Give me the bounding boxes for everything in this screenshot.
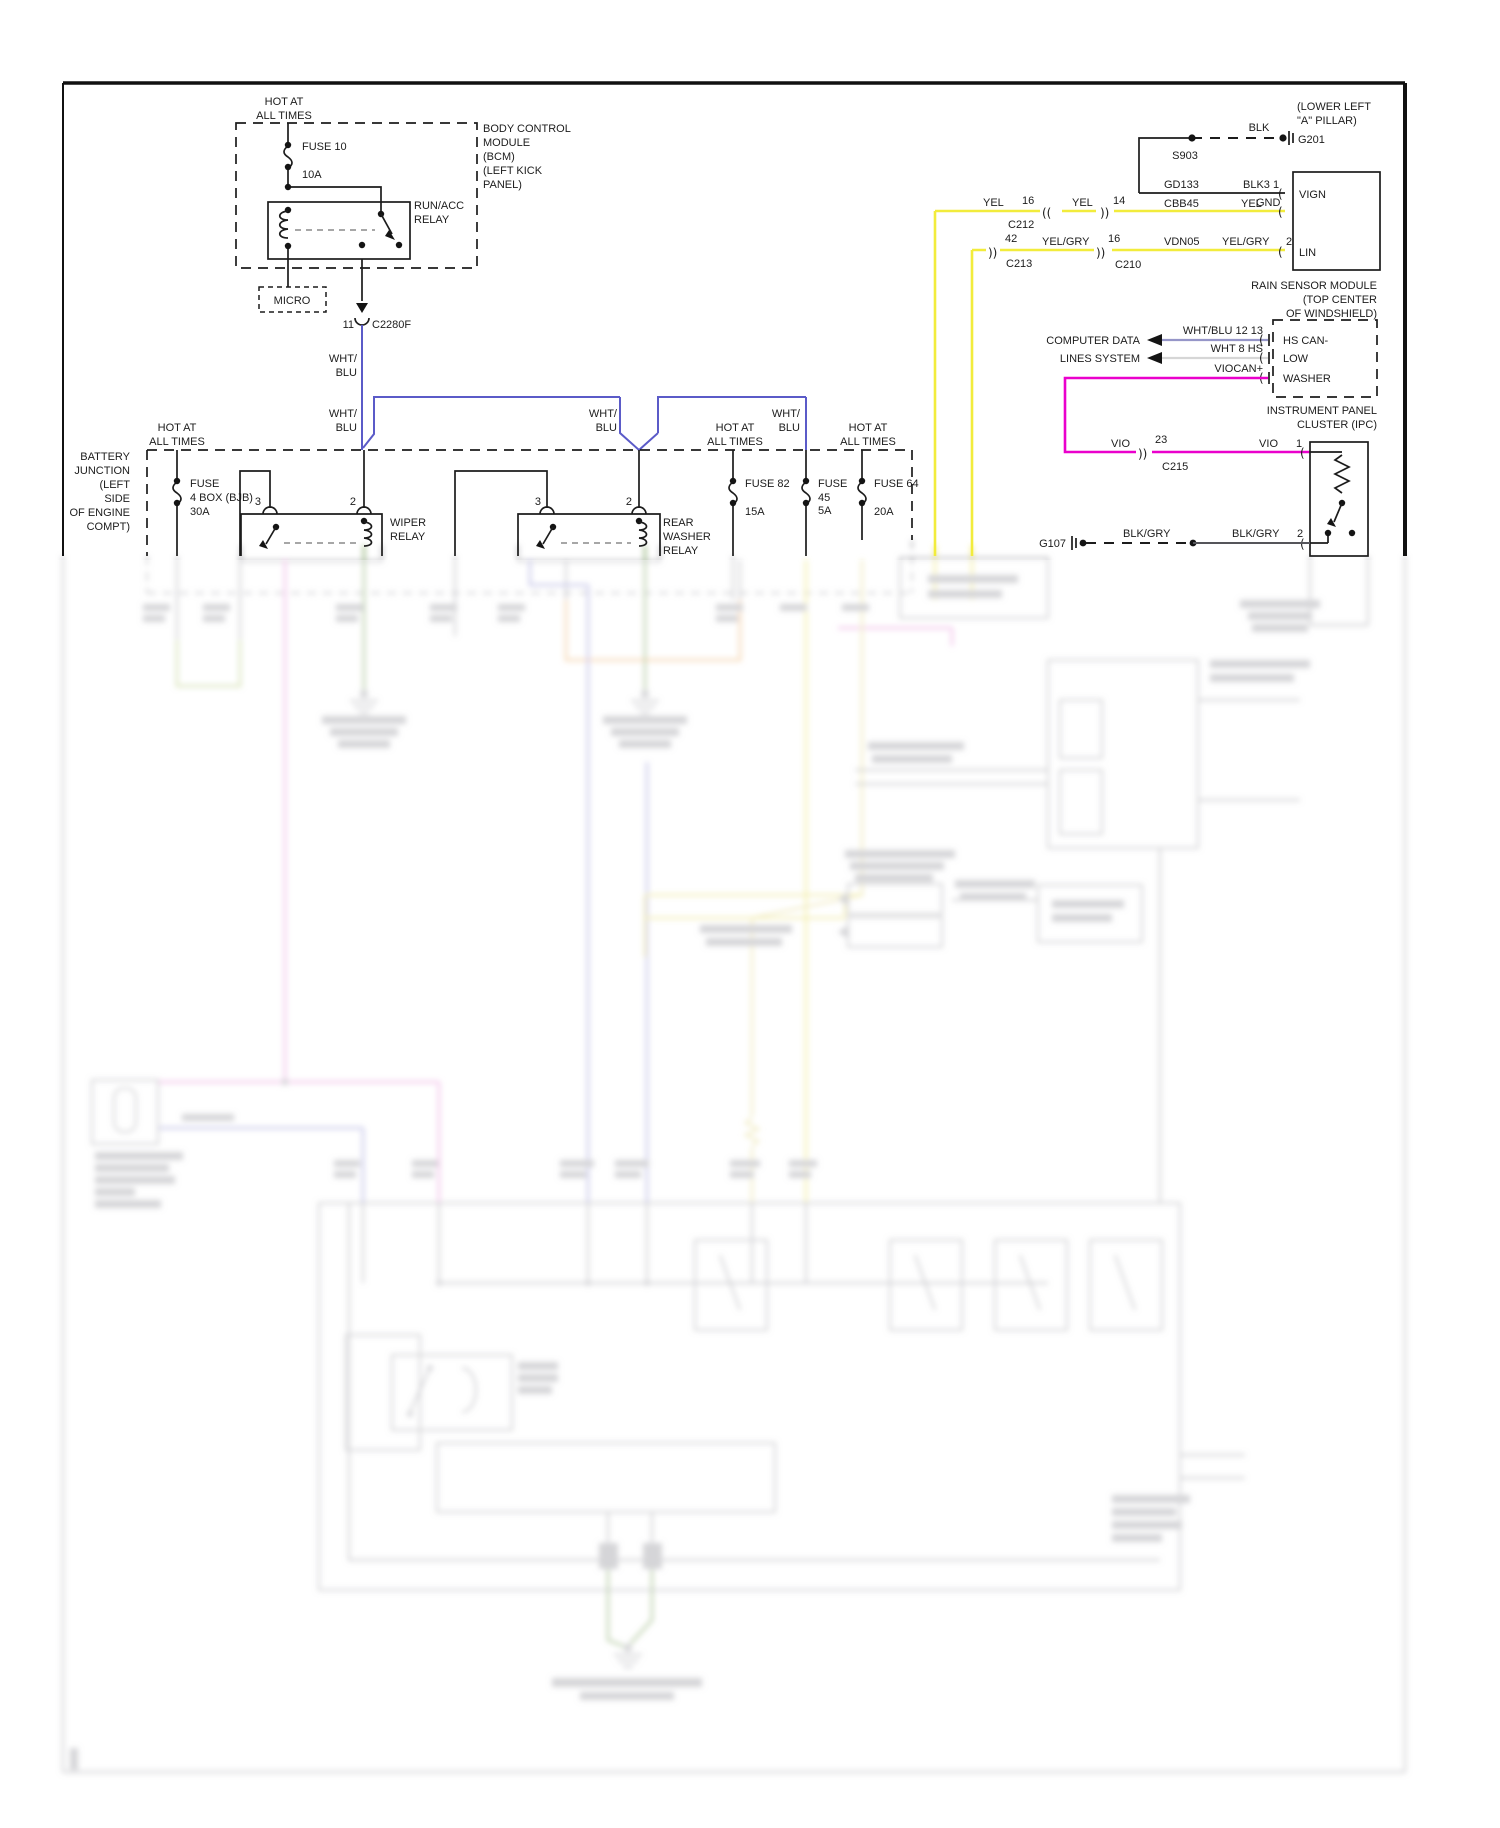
pin-number: 2 <box>1297 528 1303 540</box>
pin-number: 16 <box>1022 195 1034 207</box>
pin-number: 2 <box>1286 236 1292 248</box>
pin-number: 16 <box>1108 233 1120 245</box>
pin-number: 2 <box>626 496 632 508</box>
hot-at-label: HOT AT <box>158 422 197 434</box>
bcm-title: (BCM) <box>483 151 515 163</box>
fuse82-label: FUSE 82 <box>745 478 790 490</box>
wire-color-label: YEL <box>983 197 1004 209</box>
bjb-title: SIDE <box>104 493 130 505</box>
bjb-title: JUNCTION <box>74 465 130 477</box>
pin-number: 3 <box>535 496 541 508</box>
ground-terminal-icon <box>1289 131 1293 145</box>
computer-data-label: COMPUTER DATA <box>1046 335 1140 347</box>
fuse64-amps-label: 20A <box>874 506 894 518</box>
connector-c215-label: C215 <box>1162 461 1188 473</box>
fuse10-amps-label: 10A <box>302 169 322 181</box>
wire-color-label: YEL <box>1072 197 1093 209</box>
wire-color-label: BLK3 1 <box>1243 179 1279 191</box>
wire-color-label: WHT/ <box>772 408 801 420</box>
lines-system-label: LINES SYSTEM <box>1060 353 1140 365</box>
module-pin-label: HS CAN- <box>1283 335 1329 347</box>
ground-g107-label: G107 <box>1039 538 1066 550</box>
bjb-title: COMPT) <box>87 521 130 533</box>
inline-connector-icon: )) <box>1100 206 1109 220</box>
resistor-icon <box>1310 452 1349 543</box>
bjb-title: (LEFT <box>99 479 130 491</box>
ipc-title: CLUSTER (IPC) <box>1297 419 1377 431</box>
fuse45-label: FUSE <box>818 478 847 490</box>
wire-color-label: WHT/ <box>329 408 358 420</box>
module-pin-label: LIN <box>1299 247 1316 259</box>
inline-connector-icon: )) <box>1138 447 1147 461</box>
rear-washer-relay-label: WASHER <box>663 531 711 543</box>
wire-color-label: BLK <box>1249 122 1270 134</box>
inline-connector-icon: (( <box>1042 206 1051 220</box>
circuit-label: CBB45 <box>1164 198 1199 210</box>
blur-wash <box>0 560 1500 1828</box>
wire-color-label: BLU <box>779 422 800 434</box>
wire-color-label: VIO <box>1111 438 1130 450</box>
page-frame <box>63 83 1405 556</box>
wiring-diagram-page: HOT AT ALL TIMES FUSE 10 10A RUN/ACC REL… <box>0 0 1500 1828</box>
rain-sensor-module: (( )) )) )) ( ( ( YEL 16 C212 YEL 14 42 … <box>935 172 1380 556</box>
connector-c213-label: C213 <box>1006 258 1032 270</box>
battery-junction-box: BATTERY JUNCTION (LEFT SIDE OF ENGINE CO… <box>69 422 918 557</box>
rear-washer-relay-label: RELAY <box>663 545 699 557</box>
fuse4-label: 4 BOX (BJB) <box>190 492 253 504</box>
all-times-label: ALL TIMES <box>707 436 763 448</box>
fuse45-label: 45 <box>818 492 830 504</box>
pin-number: 11 <box>343 319 354 331</box>
computer-data-lines: ( ( ( COMPUTER DATA LINES SYSTEM WHT/BLU… <box>1046 320 1377 431</box>
wire-color-label: VIO <box>1259 438 1278 450</box>
ground-g107: G107 BLK/GRY BLK/GRY 2 <box>1039 528 1310 550</box>
pin-number: 42 <box>1005 233 1017 245</box>
arrow-left-icon <box>1147 352 1162 364</box>
module-pin-label: VIGN <box>1299 189 1326 201</box>
relay-coil-icon <box>280 211 288 238</box>
connector-c210-label: C210 <box>1115 259 1141 271</box>
circuit-label: VDN05 <box>1164 236 1199 248</box>
wire-color-label: BLU <box>336 422 357 434</box>
wire-color-label: WHT/ <box>329 353 358 365</box>
bjb-title: BATTERY <box>80 451 130 463</box>
all-times-label: ALL TIMES <box>840 436 896 448</box>
wire-color-label: BLU <box>596 422 617 434</box>
all-times-label: ALL TIMES <box>149 436 205 448</box>
hot-at-label: HOT AT <box>849 422 888 434</box>
wire-color-label: WHT 8 HS <box>1211 343 1263 355</box>
fuse45-amps-label: 5A <box>818 505 832 517</box>
bcm-title: BODY CONTROL <box>483 123 571 135</box>
wire-color-label: VIOCAN+ <box>1214 363 1263 375</box>
fuse4-label: FUSE <box>190 478 219 490</box>
bcm-title: MODULE <box>483 137 530 149</box>
all-times-label: ALL TIMES <box>256 110 312 122</box>
wire-color-label: BLK/GRY <box>1232 528 1280 540</box>
pin-number: 14 <box>1113 195 1125 207</box>
bcm-title: (LEFT KICK <box>483 165 543 177</box>
wire-color-label: YEL/GRY <box>1222 236 1270 248</box>
inline-connector-icon: )) <box>1096 246 1105 260</box>
rear-washer-relay-label: REAR <box>663 517 694 529</box>
run-acc-relay-label: RELAY <box>414 214 450 226</box>
location-label: (LOWER LEFT <box>1297 101 1371 113</box>
rain-sensor-title: RAIN SENSOR MODULE <box>1251 280 1377 292</box>
hot-at-label: HOT AT <box>716 422 755 434</box>
wire-color-label: BLK/GRY <box>1123 528 1171 540</box>
ground-terminal-icon <box>1072 536 1076 550</box>
rain-sensor-title: (TOP CENTER <box>1303 294 1377 306</box>
connector-arc-icon <box>355 318 369 325</box>
wire-color-label: BLU <box>336 367 357 379</box>
pin-number: 2 <box>350 496 356 508</box>
module-pin-label: LOW <box>1283 353 1309 365</box>
pin-number: 23 <box>1155 434 1167 446</box>
fuse10-label: FUSE 10 <box>302 141 347 153</box>
module-pin-label: GND <box>1256 197 1281 209</box>
ground-g201-label: G201 <box>1298 134 1325 146</box>
circuit-label: GD133 <box>1164 179 1199 191</box>
hot-at-label: HOT AT <box>265 96 304 108</box>
module-pin-icon: ( <box>1300 446 1305 460</box>
wire-color-label: WHT/BLU 12 13 <box>1183 325 1263 337</box>
module-pin-label: WASHER <box>1283 373 1331 385</box>
fuse64-label: FUSE 64 <box>874 478 919 490</box>
location-label: "A" PILLAR) <box>1297 115 1357 127</box>
inline-connector-icon: )) <box>988 246 997 260</box>
connector-c2280f-label: C2280F <box>372 319 411 331</box>
pin-number: 3 <box>255 496 261 508</box>
connector-c212-label: C212 <box>1008 219 1034 231</box>
wire-color-label: WHT/ <box>589 408 618 420</box>
bcm-title: PANEL) <box>483 179 522 191</box>
splice-s903-label: S903 <box>1172 150 1198 162</box>
arrow-left-icon <box>1147 334 1162 346</box>
relay-coil-icon <box>639 522 647 546</box>
wiper-relay-label: RELAY <box>390 531 426 543</box>
bjb-title: OF ENGINE <box>69 507 130 519</box>
wiper-relay-label: WIPER <box>390 517 426 529</box>
ipc-title: INSTRUMENT PANEL <box>1267 405 1377 417</box>
bcm-module: HOT AT ALL TIMES FUSE 10 10A RUN/ACC REL… <box>236 96 571 331</box>
fuse82-amps-label: 15A <box>745 506 765 518</box>
wire-color-label: YEL/GRY <box>1042 236 1090 248</box>
micro-label: MICRO <box>274 295 311 307</box>
fuse4-amps-label: 30A <box>190 506 210 518</box>
run-acc-relay-label: RUN/ACC <box>414 200 464 212</box>
module-pin-icon: ( <box>1278 245 1283 259</box>
sharp-diagram-region: HOT AT ALL TIMES FUSE 10 10A RUN/ACC REL… <box>0 0 1500 600</box>
relay-coil-icon <box>364 522 372 546</box>
relay-switch-icon <box>381 214 392 234</box>
arrow-down-icon <box>356 303 368 313</box>
rain-sensor-title: OF WINDSHIELD) <box>1286 308 1377 320</box>
